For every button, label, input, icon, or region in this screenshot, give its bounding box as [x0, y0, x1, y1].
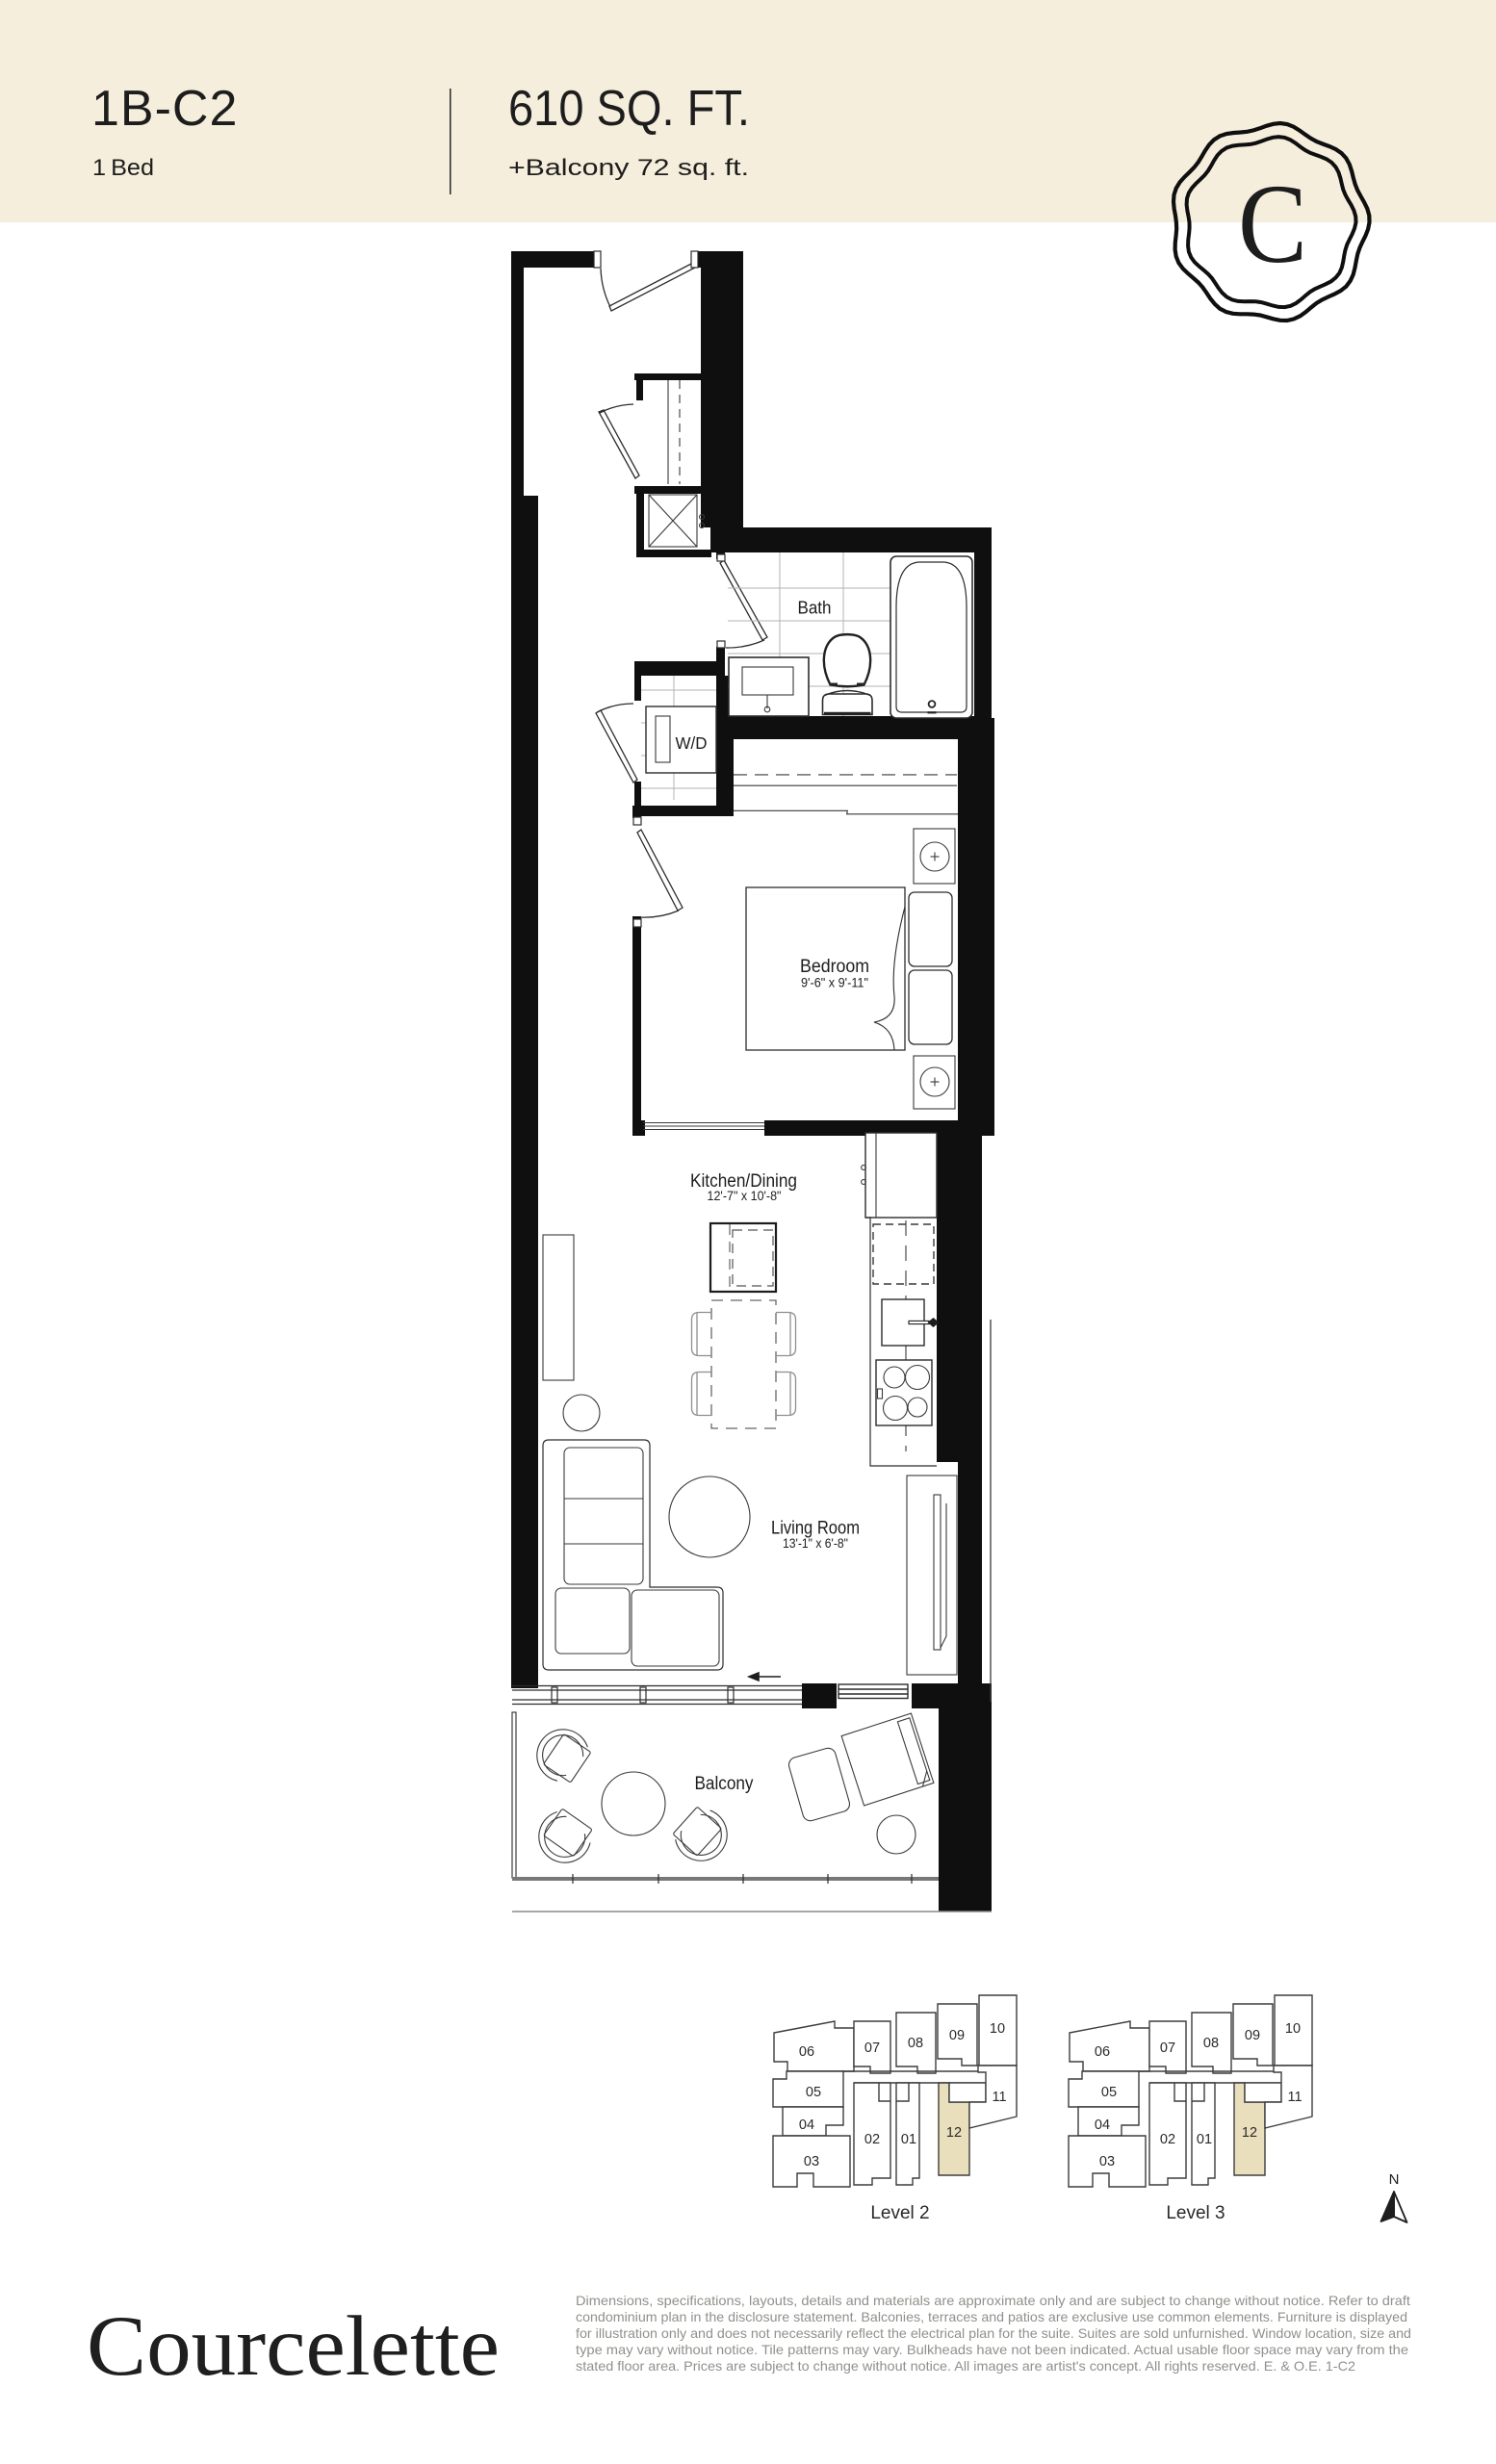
svg-text:Courcelette: Courcelette: [87, 2299, 500, 2394]
svg-text:for illustration only and does: for illustration only and does not neces…: [576, 2326, 1411, 2341]
svg-text:11: 11: [1287, 2090, 1302, 2105]
svg-text:12'-7" x 10'-8": 12'-7" x 10'-8": [708, 1189, 782, 1203]
svg-text:02: 02: [864, 2132, 880, 2147]
svg-text:13'-1" x 6'-8": 13'-1" x 6'-8": [783, 1536, 848, 1551]
svg-text:04: 04: [1095, 2117, 1110, 2133]
svg-text:09: 09: [949, 2028, 965, 2043]
svg-text:10: 10: [1285, 2021, 1301, 2037]
svg-text:05: 05: [806, 2085, 821, 2100]
svg-text:11: 11: [992, 2090, 1006, 2105]
svg-text:stated floor area. Prices are: stated floor area. Prices are subject to…: [576, 2359, 1355, 2374]
svg-text:05: 05: [1101, 2085, 1117, 2100]
svg-text:1B-C2: 1B-C2: [91, 81, 238, 137]
svg-text:9'-6" x 9'-11": 9'-6" x 9'-11": [801, 976, 868, 990]
svg-text:08: 08: [1203, 2036, 1219, 2051]
svg-text:04: 04: [799, 2117, 814, 2133]
svg-text:Bedroom: Bedroom: [800, 957, 869, 977]
svg-text:03: 03: [804, 2154, 819, 2169]
svg-text:07: 07: [1160, 2040, 1175, 2056]
svg-text:Level 2: Level 2: [870, 2203, 929, 2223]
svg-text:+Balcony 72 sq. ft.: +Balcony 72 sq. ft.: [508, 155, 749, 181]
svg-text:N: N: [1389, 2171, 1400, 2188]
svg-text:07: 07: [864, 2040, 880, 2056]
svg-text:Dimensions, specifications, la: Dimensions, specifications, layouts, det…: [576, 2294, 1410, 2308]
svg-text:10: 10: [990, 2021, 1005, 2037]
svg-text:C: C: [1238, 161, 1307, 287]
svg-text:type may vary without notice.: type may vary without notice. Tile patte…: [576, 2343, 1408, 2357]
svg-text:condominium plan in the disclo: condominium plan in the disclosure state…: [576, 2310, 1407, 2324]
svg-text:01: 01: [1197, 2132, 1212, 2147]
svg-text:08: 08: [908, 2036, 923, 2051]
svg-text:02: 02: [1160, 2132, 1175, 2147]
svg-text:12: 12: [946, 2125, 962, 2141]
svg-text:W/D: W/D: [676, 733, 708, 753]
svg-text:Level 3: Level 3: [1166, 2203, 1225, 2223]
svg-text:Bath: Bath: [798, 599, 832, 618]
svg-text:Balcony: Balcony: [695, 1774, 754, 1794]
svg-text:06: 06: [799, 2044, 814, 2060]
svg-text:03: 03: [1099, 2154, 1115, 2169]
svg-text:1 Bed: 1 Bed: [92, 155, 154, 181]
svg-text:610 SQ. FT.: 610 SQ. FT.: [508, 81, 750, 137]
svg-text:01: 01: [901, 2132, 916, 2147]
svg-text:09: 09: [1245, 2028, 1260, 2043]
svg-text:12: 12: [1242, 2125, 1257, 2141]
svg-text:06: 06: [1095, 2044, 1110, 2060]
